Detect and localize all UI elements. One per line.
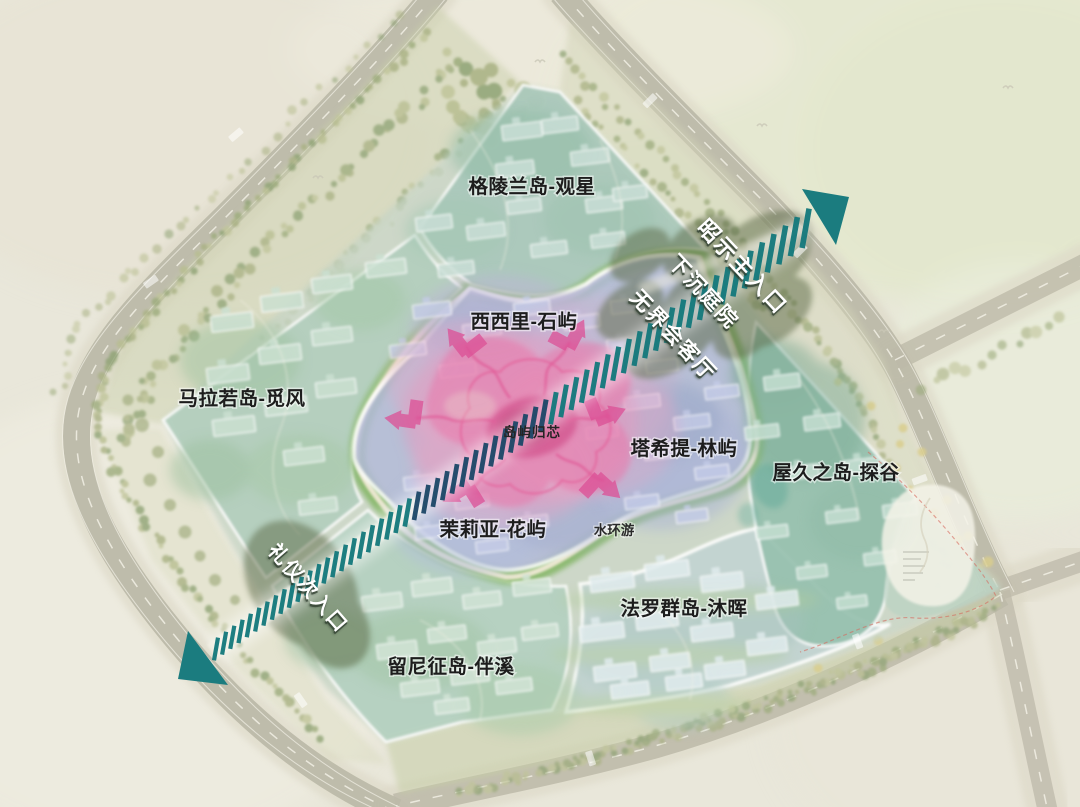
svg-text:塔希提-林屿: 塔希提-林屿 [631,437,738,460]
svg-text:屋久之岛-探谷: 屋久之岛-探谷 [773,461,900,484]
svg-text:格陵兰岛-观星: 格陵兰岛-观星 [469,175,596,198]
svg-text:西西里-石屿: 西西里-石屿 [471,311,578,333]
svg-text:留尼征岛-伴溪: 留尼征岛-伴溪 [388,655,515,678]
svg-text:马拉若岛-觅风: 马拉若岛-觅风 [179,387,306,410]
svg-text:岛屿归芯: 岛屿归芯 [503,424,561,440]
svg-text:法罗群岛-沐晖: 法罗群岛-沐晖 [621,597,748,620]
svg-text:茉莉亚-花屿: 茉莉亚-花屿 [440,518,547,541]
svg-text:水环游: 水环游 [594,522,635,538]
